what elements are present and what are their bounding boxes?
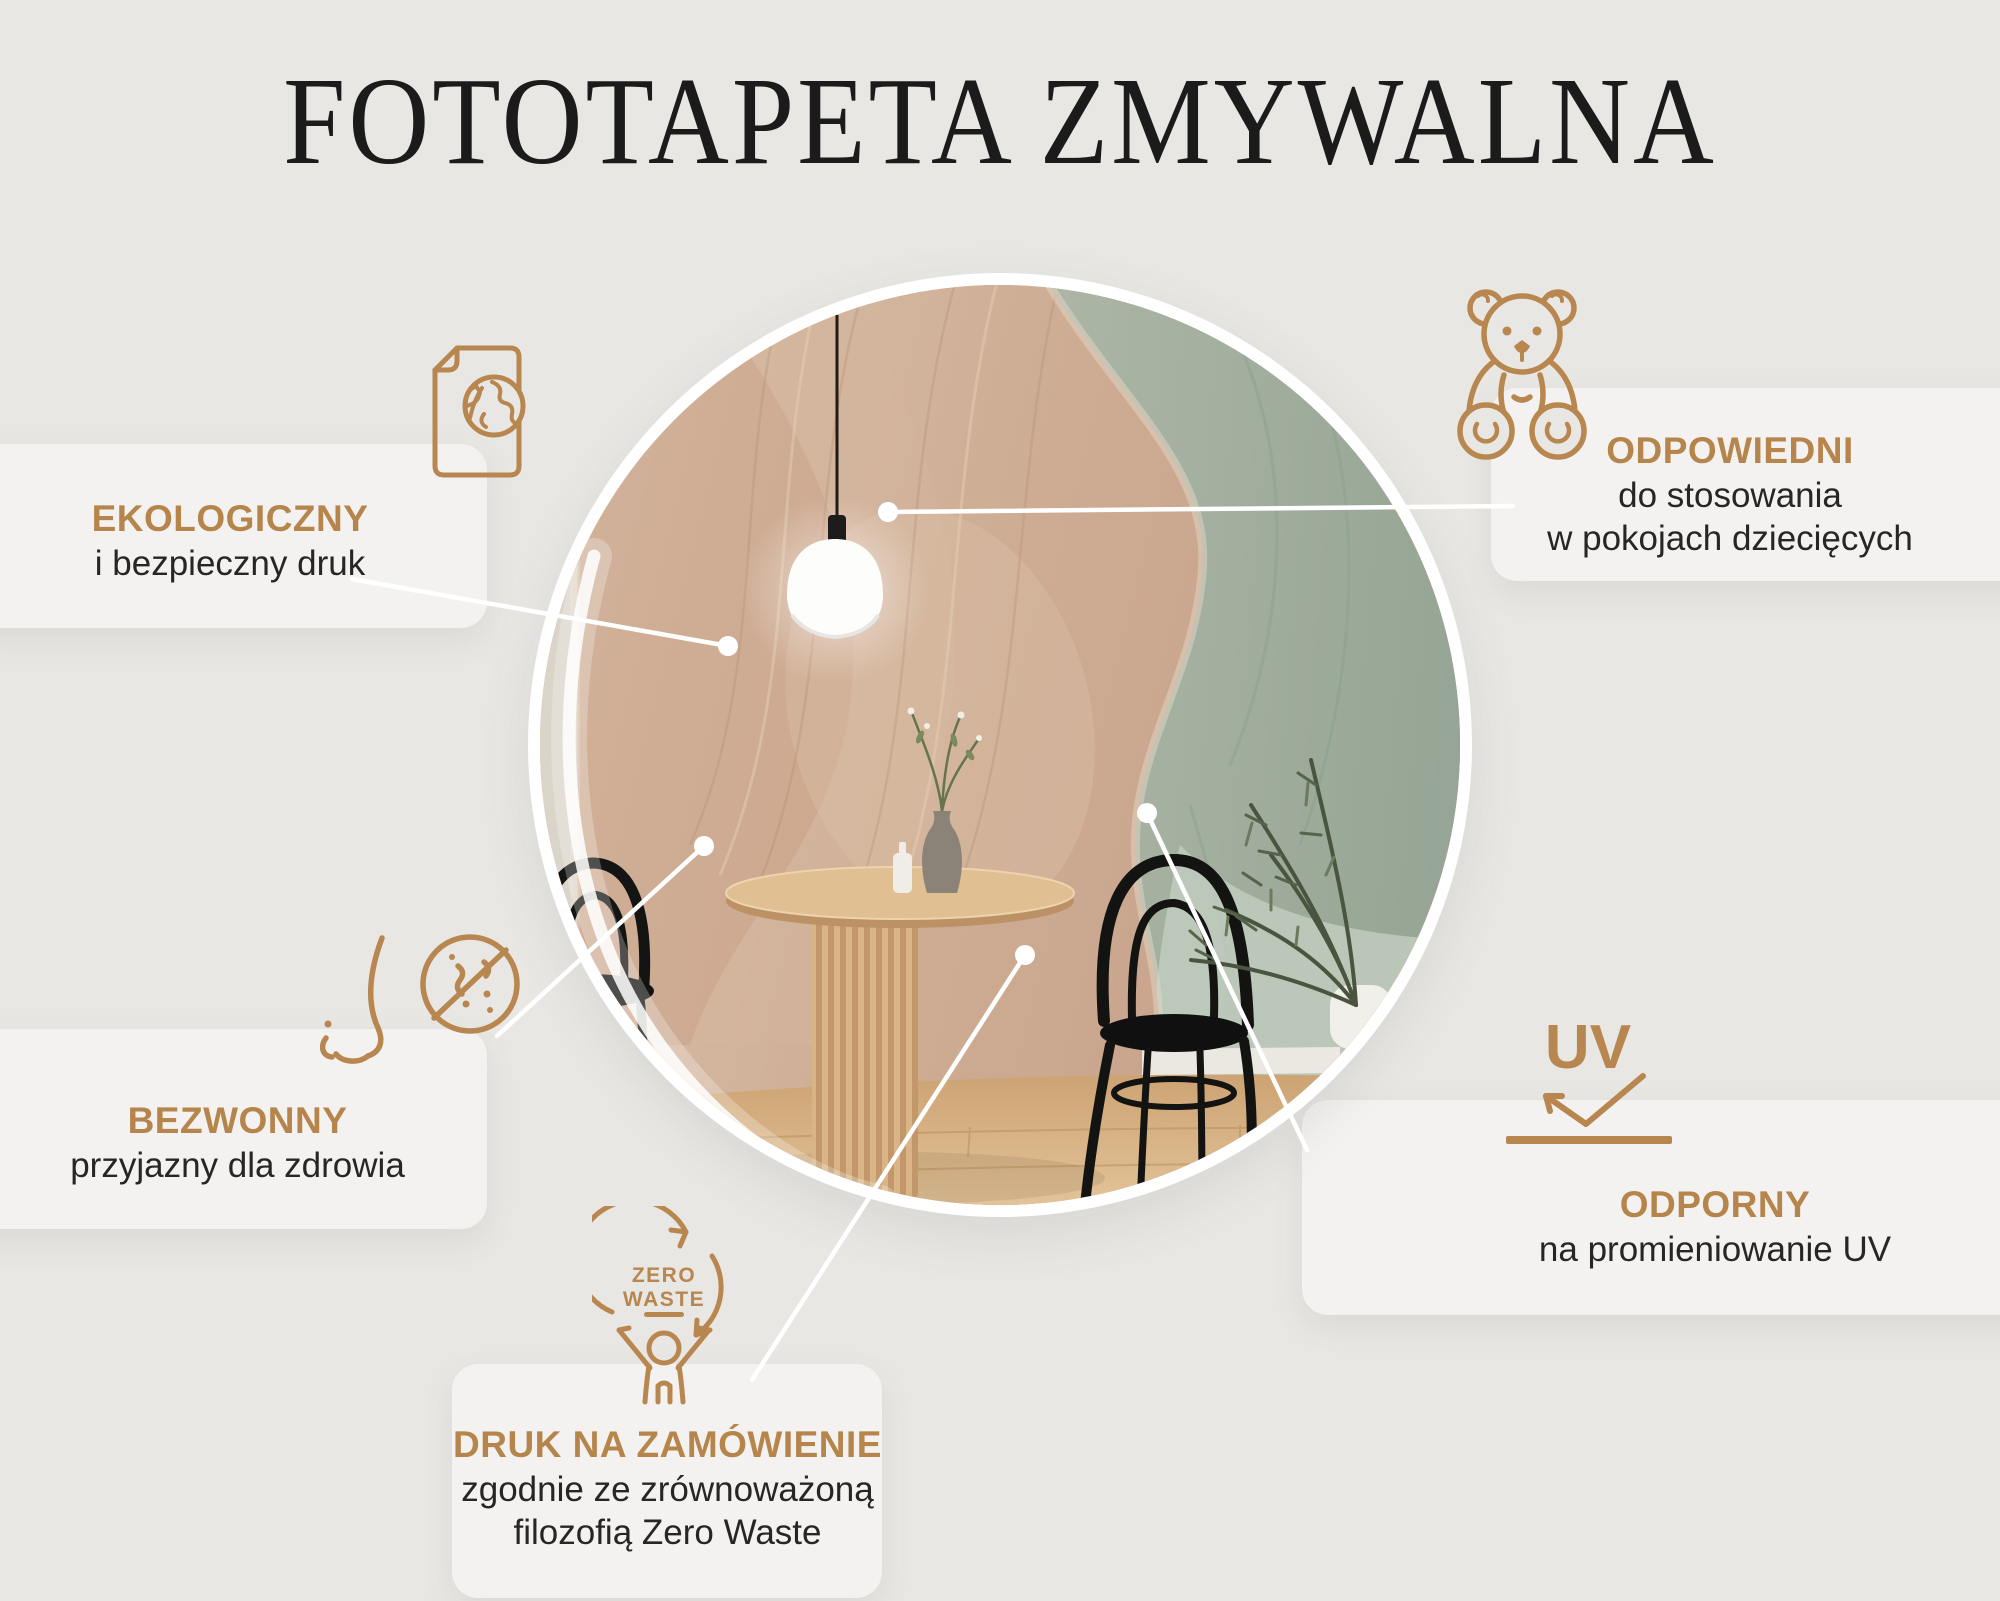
no-odor-nose-icon (320, 930, 528, 1082)
eco-paper-globe-icon (424, 344, 534, 480)
callout-odpowiedni: ODPOWIEDNI do stosowania w pokojach dzie… (1480, 428, 1980, 560)
page-title: FOTOTAPETA ZMYWALNA (0, 50, 2000, 194)
photo-room-scene (540, 285, 1460, 1205)
zero-waste-text-line2: WASTE (623, 1288, 705, 1311)
callout-druk-line2: filozofią Zero Waste (425, 1511, 910, 1554)
zero-waste-text-line1: ZERO (632, 1264, 696, 1287)
callout-bezwonny: BEZWONNY przyjazny dla zdrowia (0, 1098, 475, 1187)
callout-bezwonny-title: BEZWONNY (0, 1098, 475, 1144)
zero-waste-icon: ZERO WASTE (592, 1206, 740, 1406)
callout-bezwonny-line: przyjazny dla zdrowia (0, 1144, 475, 1187)
callout-ekologiczny-line: i bezpieczny druk (0, 542, 460, 585)
callout-druk-title: DRUK NA ZAMÓWIENIE (425, 1422, 910, 1468)
infographic-canvas: FOTOTAPETA ZMYWALNA (0, 0, 2000, 1601)
callout-druk-na-zamowienie: DRUK NA ZAMÓWIENIE zgodnie ze zrównoważo… (425, 1422, 910, 1554)
callout-druk-line1: zgodnie ze zrównoważoną (425, 1468, 910, 1511)
room-illustration (540, 285, 1460, 1205)
callout-odporny: ODPORNY na promieniowanie UV (1420, 1182, 2000, 1271)
plant-pot (1330, 985, 1392, 1049)
photo-circle (528, 273, 1472, 1217)
callout-odpowiedni-line1: do stosowania (1480, 474, 1980, 517)
callout-ekologiczny: EKOLOGICZNY i bezpieczny druk (0, 496, 460, 585)
callout-ekologiczny-title: EKOLOGICZNY (0, 496, 460, 542)
callout-odpowiedni-line2: w pokojach dziecięcych (1480, 517, 1980, 560)
callout-odpowiedni-title: ODPOWIEDNI (1480, 428, 1980, 474)
callout-odporny-line: na promieniowanie UV (1420, 1228, 2000, 1271)
uv-label: UV (1545, 1013, 1631, 1082)
uv-icon: UV (1498, 998, 1680, 1150)
callout-odporny-title: ODPORNY (1420, 1182, 2000, 1228)
